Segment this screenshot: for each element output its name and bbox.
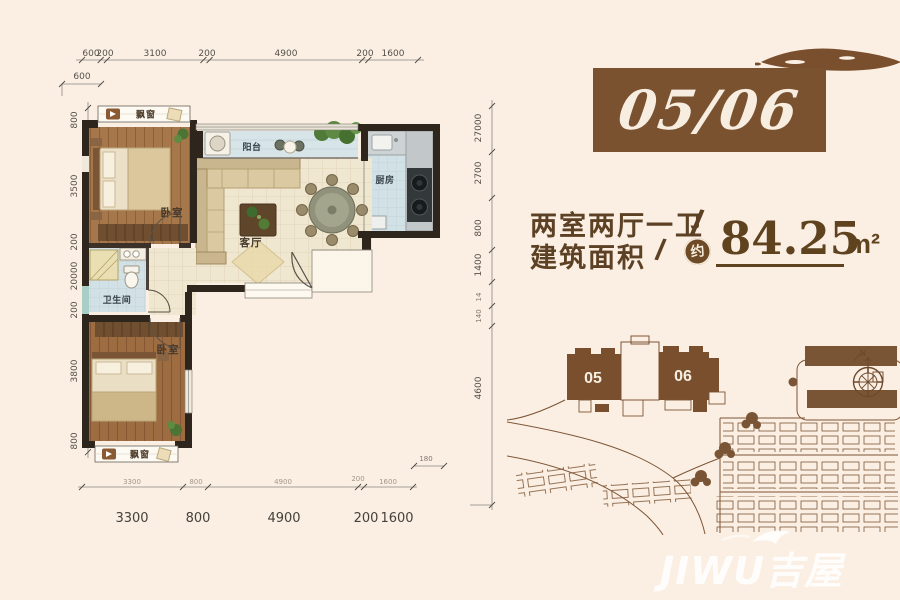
dimension-top: 600 200 3100 200 4900 200 1600 600 xyxy=(59,49,424,96)
room-label-bedroom-bottom: 卧室 xyxy=(157,343,180,356)
balcony-table xyxy=(284,141,296,153)
nightstand xyxy=(91,212,102,220)
dim-label: 3500 xyxy=(70,174,80,197)
area-unit: m² xyxy=(847,229,880,260)
room-label-living: 客厅 xyxy=(239,236,263,249)
area-value: 84.25 xyxy=(720,212,861,265)
spec-area-label: 建筑面积 xyxy=(530,236,646,275)
dim-label: 3800 xyxy=(70,359,80,382)
dim-label: 200 xyxy=(356,49,373,59)
dim-label: 200 xyxy=(351,475,364,483)
dimension-right: 27000 2700 800 1400 14 140 4600 xyxy=(470,100,495,510)
room-bedroom-bottom: 卧室 xyxy=(89,322,185,441)
compass-north-label: N xyxy=(860,349,866,358)
dim-label: 4900 xyxy=(275,49,298,59)
dim-label: 2700 xyxy=(474,161,484,184)
dim-label: 1600 xyxy=(379,478,397,486)
site-unit-06: 06 xyxy=(674,368,692,385)
site-plan: 05 06 N xyxy=(505,330,900,535)
entry-porch xyxy=(312,250,372,292)
dim-label: 4900 xyxy=(274,478,292,486)
site-unit-05: 05 xyxy=(584,370,602,387)
plant-pot xyxy=(275,140,285,150)
dim-label: 3300 xyxy=(123,478,141,486)
dimension-bottom: 3300 800 4900 200 1600 3300 800 4900 200… xyxy=(78,455,447,526)
site-neighbor-buildings xyxy=(797,346,900,420)
window-sill xyxy=(245,283,312,298)
wardrobe xyxy=(95,322,183,337)
dim-label: 14 xyxy=(475,292,483,301)
floor-plan: 600 200 3100 200 4900 200 1600 600 800 3… xyxy=(0,0,520,600)
room-label-balcony: 阳台 xyxy=(242,141,261,152)
dim-label: 600 xyxy=(73,72,90,82)
room-bathroom: 卫生间 xyxy=(89,248,146,312)
page: 600 200 3100 200 4900 200 1600 600 800 3… xyxy=(0,0,900,600)
dining-table xyxy=(297,175,368,246)
area-underline xyxy=(716,264,844,267)
dim-label: 800 xyxy=(186,511,211,526)
room-label-kitchen: 厨房 xyxy=(375,174,394,185)
unit-number: 05/06 xyxy=(615,78,804,142)
bay-label-top: 飘窗 xyxy=(136,109,156,120)
dim-label: 4600 xyxy=(474,376,484,399)
dim-label: 27000 xyxy=(474,113,484,142)
dim-label: 1400 xyxy=(474,253,484,276)
dim-label: 800 xyxy=(189,478,202,486)
bird-icon xyxy=(752,530,790,544)
dim-label: 20000 xyxy=(70,261,80,290)
room-kitchen: 厨房 xyxy=(366,131,433,231)
watermark-text: JIWU吉屋 xyxy=(653,549,846,593)
dim-label: 180 xyxy=(419,455,432,463)
nightstand xyxy=(91,138,102,146)
bay-label-bottom: 飘窗 xyxy=(130,449,150,460)
site-main-building: 05 06 xyxy=(567,336,725,416)
room-label-bathroom: 卫生间 xyxy=(103,294,132,305)
dim-label: 800 xyxy=(474,219,484,236)
dim-label: 3300 xyxy=(115,511,148,526)
watermark: JIWU吉屋 xyxy=(652,528,897,594)
unit-number-box: 05/06 xyxy=(593,68,826,152)
dim-label: 200 xyxy=(96,49,113,59)
dim-label: 1600 xyxy=(380,511,413,526)
dim-label: 800 xyxy=(70,111,80,128)
bay-window-top: 飘窗 xyxy=(98,106,190,122)
dim-label: 200 xyxy=(70,301,80,318)
dim-label: 800 xyxy=(70,432,80,449)
dim-label: 3100 xyxy=(144,49,167,59)
dim-label: 200 xyxy=(70,233,80,250)
dim-label: 1600 xyxy=(382,49,405,59)
dim-label: 200 xyxy=(198,49,215,59)
dim-label: 140 xyxy=(475,309,483,322)
bed-headboard xyxy=(93,148,100,210)
bathroom-window xyxy=(82,286,89,314)
bay-window-bottom: 飘窗 xyxy=(95,446,178,462)
room-bedroom-top: 卧室 xyxy=(89,127,190,244)
coffee-table xyxy=(240,204,276,236)
bed-headboard xyxy=(92,352,156,359)
dim-label: 200 xyxy=(354,511,379,526)
dim-label: 4900 xyxy=(267,511,300,526)
